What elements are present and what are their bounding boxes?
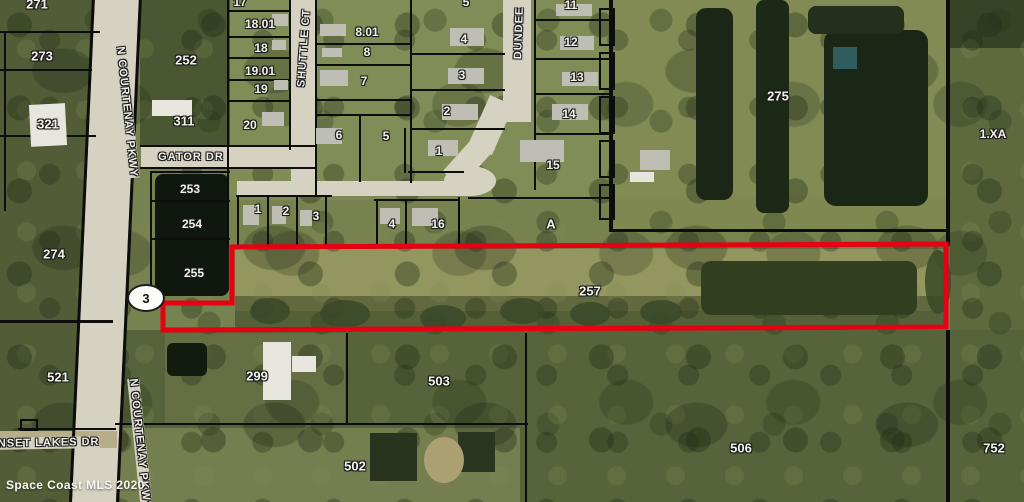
- aerial-parcel-map: 3 2712733212745212523112532542552571718.…: [0, 0, 1024, 502]
- subject-parcel-outline: [0, 0, 1024, 502]
- watermark: Space Coast MLS 2020: [6, 478, 145, 492]
- highway-shield-number: 3: [142, 291, 149, 306]
- highway-shield: 3: [127, 284, 165, 312]
